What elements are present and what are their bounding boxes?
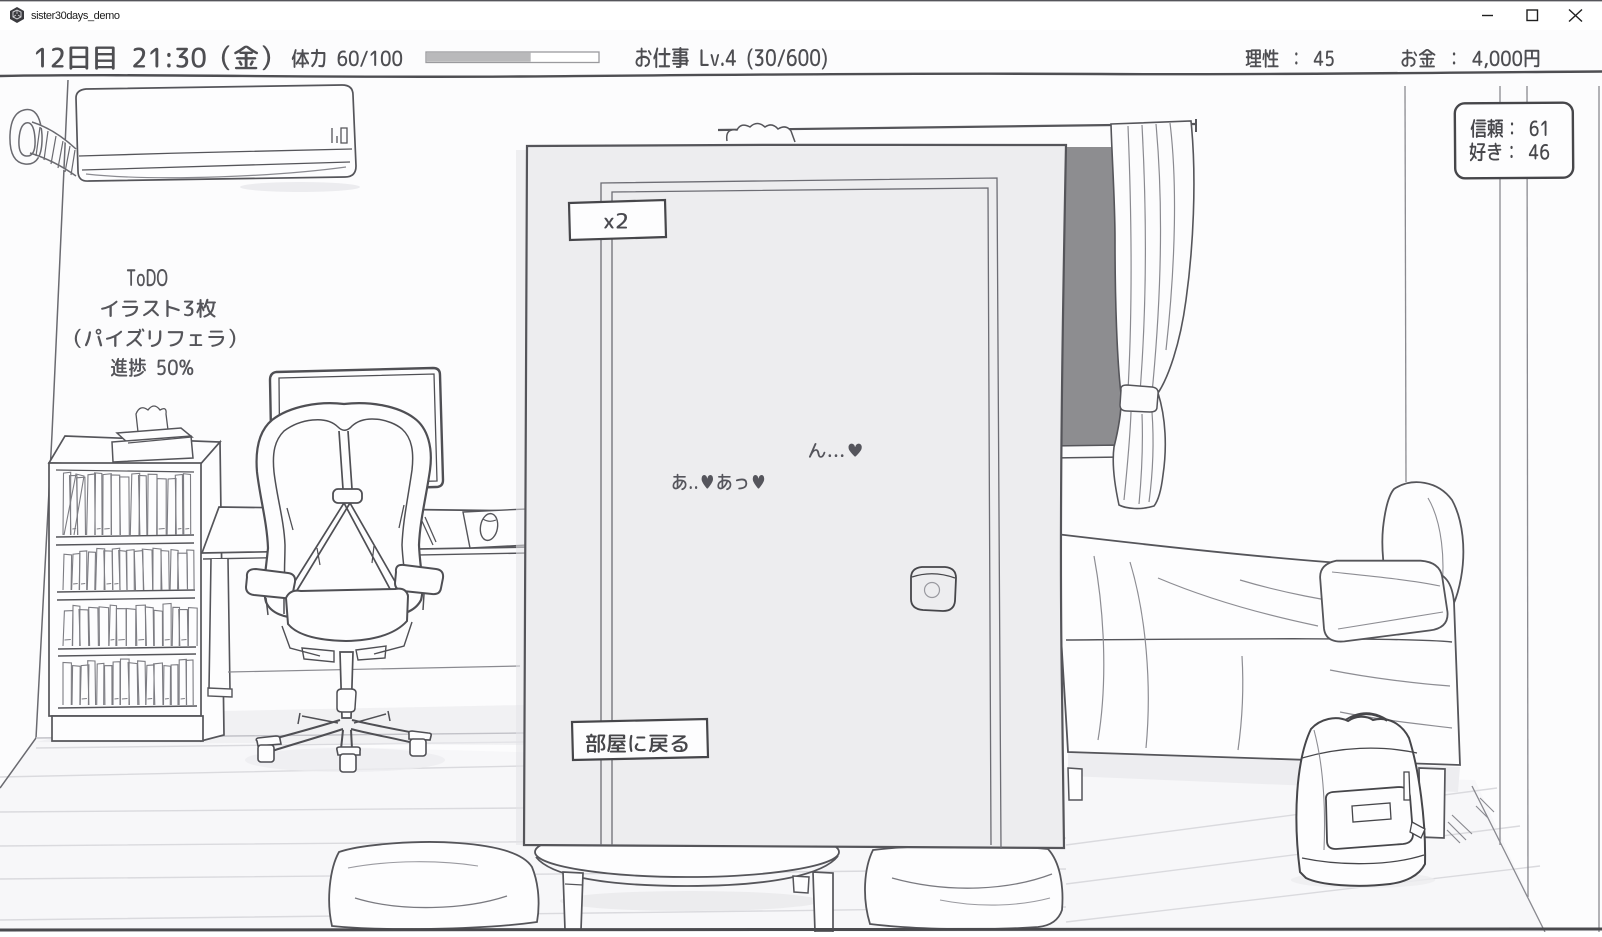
svg-text:sister30days_demo: sister30days_demo <box>31 10 120 22</box>
